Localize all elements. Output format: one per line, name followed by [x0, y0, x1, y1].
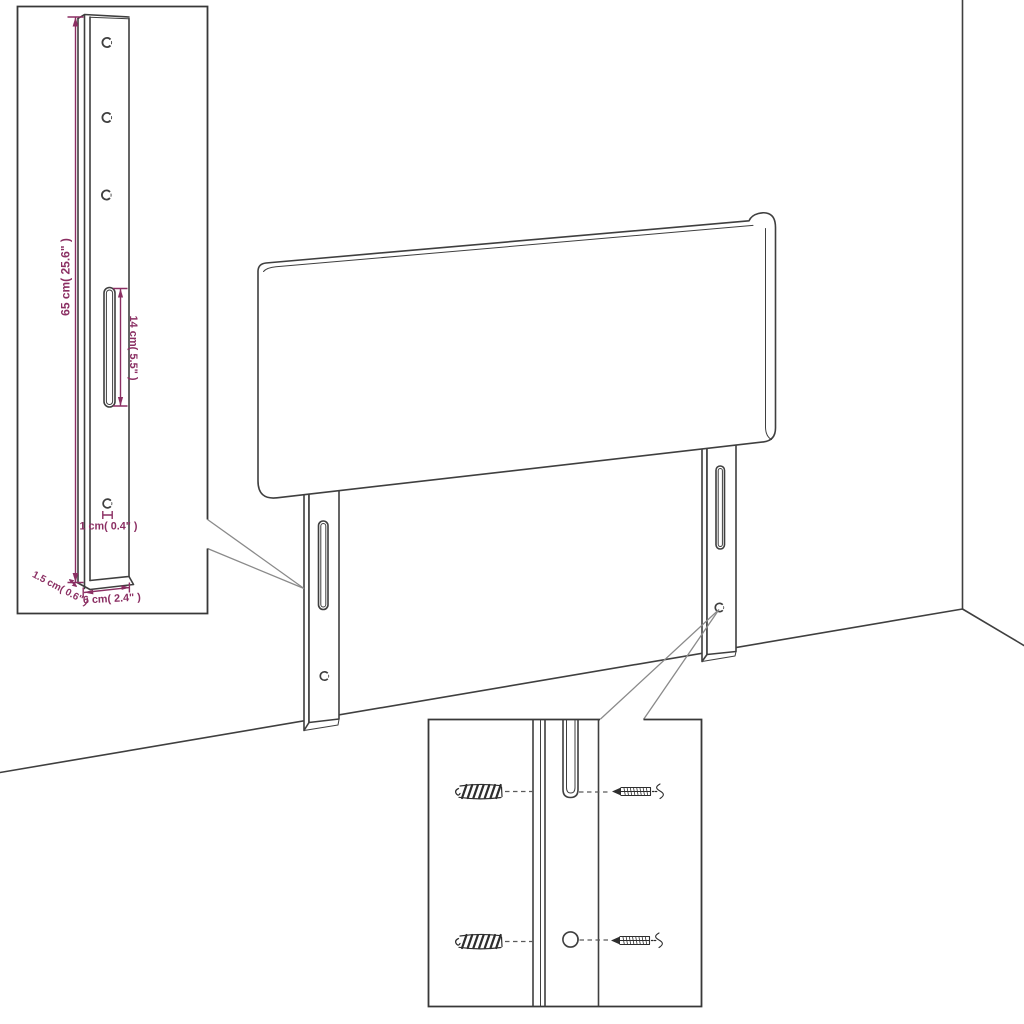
dimension-height-label: 65 cm( 25.6" ) — [59, 238, 73, 316]
screw-detail-inset — [429, 720, 702, 1007]
screw-detail-callout-lines — [600, 610, 719, 720]
left-mounting-leg — [304, 486, 339, 731]
headboard — [258, 213, 776, 498]
dimension-slot-length-label: 14 cm( 5.5" ) — [127, 315, 139, 380]
screw-detail-inset-border — [429, 720, 702, 1007]
leg-detail-inset: 65 cm( 25.6" ) 14 cm( 5.5" ) 1 cm( 0.4" … — [18, 7, 208, 614]
headboard-front-face — [258, 213, 776, 498]
assembly-diagram: 65 cm( 25.6" ) 14 cm( 5.5" ) 1 cm( 0.4" … — [0, 0, 1024, 1024]
diagram-canvas: 65 cm( 25.6" ) 14 cm( 5.5" ) 1 cm( 0.4" … — [0, 0, 1024, 1024]
dimension-hole-diameter-label: 1 cm( 0.4" ) — [80, 521, 138, 533]
leg-detail-callout-lines — [208, 520, 305, 589]
floor-line-right — [963, 609, 1024, 646]
